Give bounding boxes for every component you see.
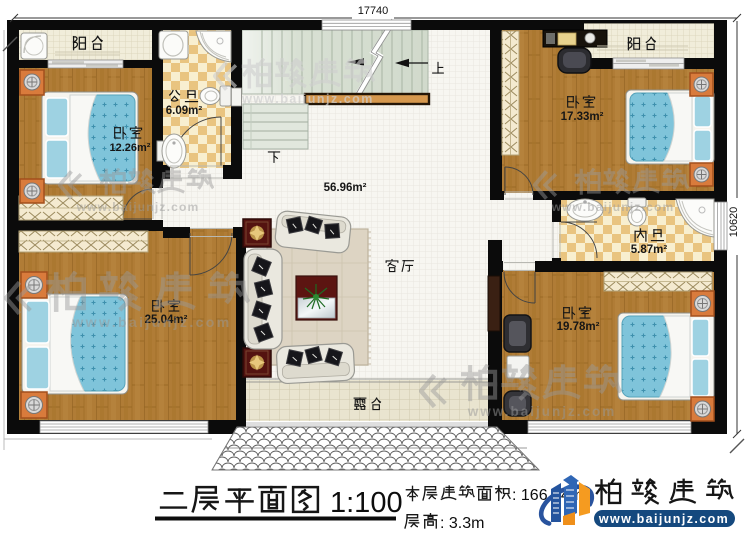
svg-text:17.33m²: 17.33m² [561, 111, 604, 123]
svg-text:www.baijunjz.com: www.baijunjz.com [598, 512, 729, 526]
svg-text:www.baijunjz.com: www.baijunjz.com [71, 314, 231, 330]
svg-text:www.baijunjz.com: www.baijunjz.com [467, 404, 617, 419]
svg-text:19.78m²: 19.78m² [557, 321, 600, 333]
svg-text:56.96m²: 56.96m² [324, 182, 367, 194]
svg-text:17740: 17740 [358, 5, 389, 17]
svg-text:5.87m²: 5.87m² [631, 244, 668, 256]
svg-text:6.09m²: 6.09m² [166, 105, 203, 117]
svg-text:1:100: 1:100 [330, 487, 403, 519]
svg-text:10620: 10620 [728, 207, 740, 238]
svg-text:www.baijunjz.com: www.baijunjz.com [76, 200, 200, 214]
svg-text:www.baijunjz.com: www.baijunjz.com [241, 92, 374, 106]
svg-text:www.baijunjz.com: www.baijunjz.com [551, 200, 675, 214]
svg-text:: 3.3m: : 3.3m [440, 515, 484, 532]
svg-text:12.26m²: 12.26m² [110, 142, 151, 154]
